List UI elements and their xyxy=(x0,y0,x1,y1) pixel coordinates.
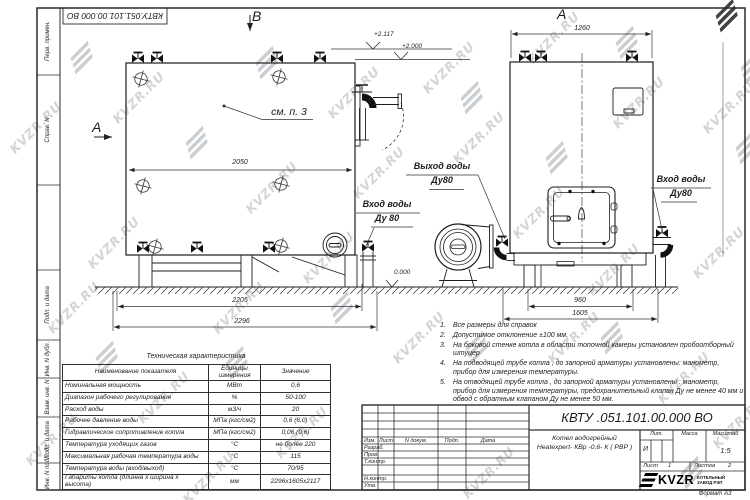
note-text: На отводящей трубе котла , до запорной а… xyxy=(453,379,744,405)
col-name: Наименование показателя xyxy=(63,365,209,381)
inlet-water-label-right: Вход воды Ду80 xyxy=(648,173,714,200)
inlet-left-line1: Вход воды xyxy=(352,198,422,212)
product-title-line1: Котел водогрейный xyxy=(530,434,639,443)
row-name: Диапазон рабочего регулирования xyxy=(63,392,209,404)
note-number: 3. xyxy=(440,342,453,360)
scale-value: 1:5 xyxy=(706,446,745,455)
outlet-water-label: Выход воды Ду80 xyxy=(404,160,480,187)
boiler-front-view xyxy=(510,52,671,288)
title-block-doc-number: КВТУ .051.101.00.000 ВО xyxy=(531,407,743,429)
row-units: °С xyxy=(209,463,261,475)
sheet-label: Лист xyxy=(643,463,658,469)
drawing-sheet: KVZR.RUKVZR.RUKVZR.RUKVZR.RUKVZR.RUKVZR.… xyxy=(0,0,750,500)
strip-podp-data-1: Подп. и дата xyxy=(45,271,51,339)
strip-sprav-n: Справ. N xyxy=(45,76,51,184)
logo-caption-line2: ЗАВОД РЭП xyxy=(697,480,725,485)
note-number: 5. xyxy=(440,379,453,405)
note-item: 5. На отводящей трубе котла , до запорно… xyxy=(440,379,744,405)
product-title: Котел водогрейный Heatexpert- КВр -0,6- … xyxy=(530,434,639,452)
strip-inv-podl: Инв. N подл. xyxy=(45,463,51,489)
col-list: Лист xyxy=(378,438,394,444)
note-item: 4. На подводящей трубе котла , до запорн… xyxy=(440,360,744,378)
elevation-zero: 0.000 xyxy=(394,269,410,276)
row-value: 70/95 xyxy=(261,463,331,475)
row-nkontr: Н.контр. xyxy=(364,476,396,482)
dim-1605: 1605 xyxy=(560,310,600,317)
dimension-lines xyxy=(113,30,658,331)
row-name: Температура воды (вход/выход) xyxy=(63,463,209,475)
row-name: Расход воды xyxy=(63,404,209,416)
inlet-right-line2: Ду80 xyxy=(648,187,714,201)
dim-2205: 2205 xyxy=(220,297,260,304)
notes-list: 1. Все размеры для справок 2. Допустимое… xyxy=(440,322,744,406)
inlet-water-label-left: Вход воды Ду 80 xyxy=(352,198,422,225)
scale-label: Масштаб xyxy=(706,431,745,437)
row-name: Максимальная рабочая температура воды xyxy=(63,451,209,463)
row-units: МПа (кгс/см2) xyxy=(209,428,261,440)
row-value: 2296х1605х2117 xyxy=(261,475,331,490)
row-name: Габариты котла (длинна х ширина х высота… xyxy=(63,475,209,490)
row-value: 0,6 (6,0) xyxy=(261,416,331,428)
row-units: МПа (кгс/см2) xyxy=(209,416,261,428)
row-value: 0,06 (0,6) xyxy=(261,428,331,440)
row-name: Гидравлическое сопротивление котла xyxy=(63,428,209,440)
see-item-callout: см. п. 3 xyxy=(264,106,314,118)
outlet-water-line2: Ду80 xyxy=(404,174,480,188)
view-a-title: А xyxy=(557,6,566,22)
nameplate-panel xyxy=(613,88,643,115)
note-number: 2. xyxy=(440,332,453,341)
row-razrab: Разраб. xyxy=(364,445,396,451)
view-arrows xyxy=(94,15,250,137)
row-value: 115 xyxy=(261,451,331,463)
elevation-2000: +2.000 xyxy=(402,43,422,50)
note-text: Все размеры для справок xyxy=(453,322,744,331)
row-value: 20 xyxy=(261,404,331,416)
tech-table: Наименование показателя Единицы измерени… xyxy=(62,364,331,490)
tech-table-header: Наименование показателя Единицы измерени… xyxy=(63,365,331,381)
dim-2296: 2296 xyxy=(222,318,262,325)
side-view-base xyxy=(139,255,357,287)
row-name: Температура уходящих газов xyxy=(63,439,209,451)
lit-value: И xyxy=(640,446,651,453)
col-value: Значение xyxy=(261,365,331,381)
ground-line xyxy=(95,287,678,294)
manufacturer-logo: KVZR КОТЕЛЬНЫЙ ЗАВОД РЭП xyxy=(642,471,744,489)
view-a-arrow-label: А xyxy=(92,119,101,135)
strip-inv-dubl: Инв. N дубл. xyxy=(45,341,51,378)
row-units: °С xyxy=(209,439,261,451)
note-number: 1. xyxy=(440,322,453,331)
row-prov: Пров. xyxy=(364,452,396,458)
inlet-left-line2: Ду 80 xyxy=(352,212,422,226)
table-row: Рабочее давление водыМПа (кгс/см2)0,6 (6… xyxy=(63,416,331,428)
front-view-base xyxy=(514,253,646,287)
strip-vzam-inv: Взам. инв. N xyxy=(45,378,51,416)
inlet-pipe-left-view xyxy=(360,252,376,287)
burner-flange xyxy=(323,233,347,257)
row-utv: Утв. xyxy=(364,483,396,489)
row-name: Номинальная мощность xyxy=(63,381,209,393)
mass-label: Масса xyxy=(673,431,706,437)
furnace-door xyxy=(548,187,617,248)
view-b-label: В xyxy=(252,8,261,24)
col-podp: Подп. xyxy=(438,438,466,444)
dim-960: 960 xyxy=(560,297,600,304)
row-units: мм xyxy=(209,475,261,490)
inlet-pipe-right xyxy=(653,238,671,288)
row-units: % xyxy=(209,392,261,404)
table-row: Расход водым3/ч20 xyxy=(63,404,331,416)
table-row: Максимальная рабочая температура воды°С1… xyxy=(63,451,331,463)
kvzr-logo-text: KVZR xyxy=(658,473,694,487)
row-units: °С xyxy=(209,451,261,463)
strip-perv-primen: Перв. примен. xyxy=(45,8,51,74)
table-row: Диапазон рабочего регулирования%50-100 xyxy=(63,392,331,404)
row-value: не более 220 xyxy=(261,439,331,451)
col-doc: N докум. xyxy=(394,438,438,444)
col-izm: Изм. xyxy=(362,438,378,444)
row-units: МВт xyxy=(209,381,261,393)
note-item: 3. На боковой стенке котла в области топ… xyxy=(440,342,744,360)
kvzr-logo-icon xyxy=(639,473,659,487)
inlet-right-line1: Вход воды xyxy=(648,173,714,187)
dim-1260: 1260 xyxy=(562,25,602,32)
lit-label: Лит. xyxy=(640,431,673,437)
top-doc-number: КВТУ.051.101.00.000 ВО xyxy=(63,8,167,24)
col-data: Дата xyxy=(466,438,510,444)
note-number: 4. xyxy=(440,360,453,378)
dim-2050: 2050 xyxy=(222,159,258,166)
row-name: Рабочее давление воды xyxy=(63,416,209,428)
table-row: Гидравлическое сопротивление котлаМПа (к… xyxy=(63,428,331,440)
elevation-2117: +2.117 xyxy=(374,31,394,38)
table-row: Габариты котла (длинна х ширина х высота… xyxy=(63,475,331,490)
outlet-water-line1: Выход воды xyxy=(404,160,480,174)
table-row: Температура воды (вход/выход)°С70/95 xyxy=(63,463,331,475)
kvzr-logo-caption: КОТЕЛЬНЫЙ ЗАВОД РЭП xyxy=(697,475,725,485)
product-title-line2: Heatexpert- КВр -0,6- К ( РВР ) xyxy=(530,443,639,452)
note-item: 2. Допустимое отклонение ±100 мм. xyxy=(440,332,744,341)
table-row: Температура уходящих газов°Сне более 220 xyxy=(63,439,331,451)
tech-table-title: Техническая характеристика xyxy=(62,353,330,360)
format-note: Формат А3 xyxy=(686,491,744,497)
table-row: Номинальная мощностьМВт0,6 xyxy=(63,381,331,393)
sheets-label: Листов xyxy=(694,463,715,469)
note-item: 1. Все размеры для справок xyxy=(440,322,744,331)
note-text: На боковой стенке котла в области топочн… xyxy=(453,342,744,360)
note-text: Допустимое отклонение ±100 мм. xyxy=(453,332,744,341)
sheets-value: 2 xyxy=(728,463,731,469)
note-text: На подводящей трубе котла , до запорной … xyxy=(453,360,744,378)
col-units: Единицы измерения xyxy=(209,365,261,381)
row-value: 0,6 xyxy=(261,381,331,393)
outlet-pipe-cluster xyxy=(352,85,404,150)
sheet-value: 1 xyxy=(668,463,671,469)
row-tkontr: Т.контр. xyxy=(364,459,396,465)
row-units: м3/ч xyxy=(209,404,261,416)
row-value: 50-100 xyxy=(261,392,331,404)
